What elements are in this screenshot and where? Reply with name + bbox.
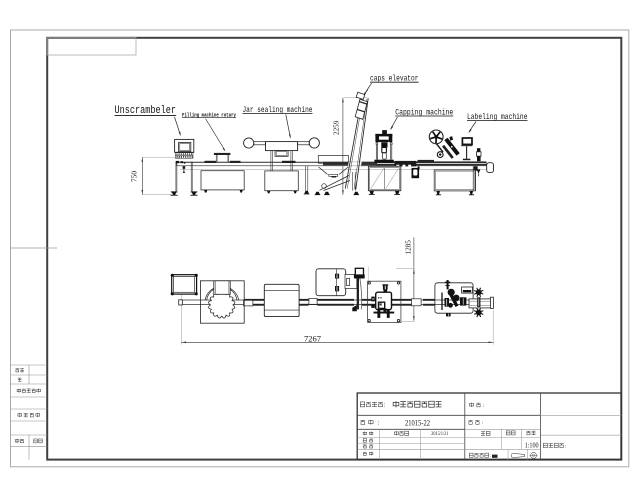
svg-text:2015/1/21: 2015/1/21 (431, 432, 448, 437)
svg-text:2259: 2259 (333, 120, 341, 135)
svg-text:750: 750 (129, 171, 138, 183)
svg-text:7267: 7267 (304, 334, 322, 344)
svg-text:1285: 1285 (405, 240, 413, 255)
svg-text:21015-22: 21015-22 (405, 418, 430, 427)
svg-text::: : (490, 454, 491, 459)
svg-text:1:100: 1:100 (525, 441, 539, 450)
